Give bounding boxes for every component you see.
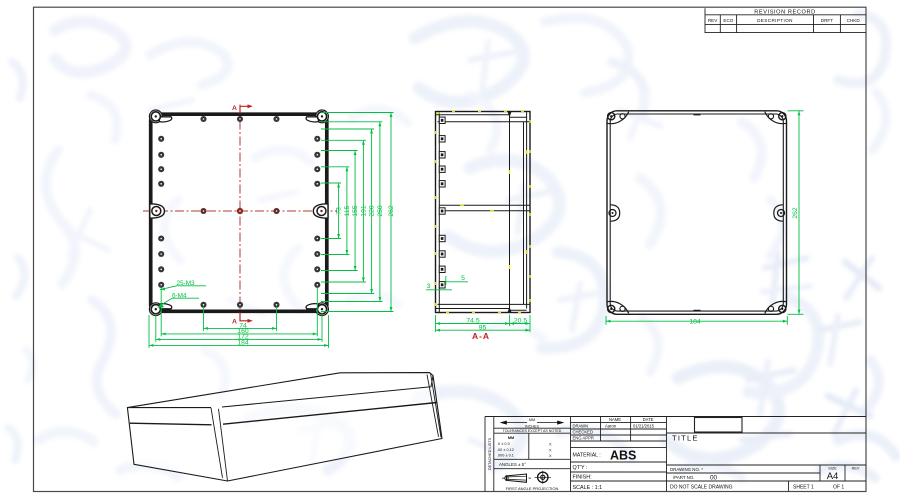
svg-text:.000 ± 0.1: .000 ± 0.1 [497, 454, 514, 458]
svg-text:250: 250 [377, 205, 384, 217]
svg-text:191: 191 [360, 205, 367, 217]
svg-text:A: A [232, 319, 237, 326]
svg-text:SHEET 1: SHEET 1 [793, 484, 814, 490]
svg-text:REVISION RECORD: REVISION RECORD [754, 9, 816, 15]
svg-text:ABS: ABS [610, 449, 636, 463]
svg-text:X: X [549, 448, 552, 452]
svg-text:/PART NO.: /PART NO. [673, 475, 694, 480]
svg-text:A4: A4 [827, 471, 839, 482]
svg-text:A: A [232, 105, 237, 112]
svg-text:CHKD: CHKD [847, 18, 861, 23]
svg-text:115: 115 [344, 205, 351, 216]
svg-text:262: 262 [792, 207, 799, 219]
svg-text:X: X [549, 443, 552, 447]
svg-text:MATERIAL :: MATERIAL : [573, 453, 601, 459]
svg-text:DO NOT SCALE DRAWING: DO NOT SCALE DRAWING [670, 484, 733, 490]
svg-text:184: 184 [237, 340, 249, 347]
svg-text:FIRST ANGLE PROJECTION: FIRST ANGLE PROJECTION [506, 486, 559, 491]
svg-text:SIZE: SIZE [828, 467, 837, 471]
svg-text:INCHES: INCHES [525, 424, 539, 428]
svg-text:262: 262 [388, 205, 395, 217]
svg-text:ANGLES ± 5°: ANGLES ± 5° [499, 462, 526, 467]
svg-text:SCALE : 1:1: SCALE : 1:1 [573, 485, 603, 491]
svg-text:QT'Y :: QT'Y : [573, 465, 588, 471]
svg-text:DATE: DATE [643, 417, 654, 422]
svg-text:DESCRIPTION: DESCRIPTION [757, 18, 793, 23]
svg-text:MM: MM [508, 436, 514, 440]
svg-text:184: 184 [689, 318, 701, 325]
svg-text:TOLERANCES EXCEPT AS NOTED: TOLERANCES EXCEPT AS NOTED [503, 429, 562, 433]
svg-text:MM: MM [529, 418, 535, 422]
svg-text:CHECKED: CHECKED [573, 429, 593, 434]
svg-text:DRAWING NO. *: DRAWING NO. * [670, 467, 703, 472]
svg-text:REV: REV [852, 467, 860, 471]
svg-text:TITLE: TITLE [672, 434, 699, 443]
svg-text:OF 1: OF 1 [833, 484, 844, 490]
svg-text:REV: REV [708, 18, 718, 23]
svg-text:20.5: 20.5 [514, 318, 527, 325]
svg-text:.00 ± 0.12: .00 ± 0.12 [497, 448, 514, 452]
svg-text:3: 3 [427, 283, 431, 290]
svg-text:ENG APPR: ENG APPR [573, 435, 594, 440]
svg-text:Aaron: Aaron [605, 423, 617, 428]
svg-text:.0 ± 0.3: .0 ± 0.3 [497, 442, 510, 446]
svg-text:DETACHED LISTS: DETACHED LISTS [488, 437, 492, 470]
svg-text:155: 155 [352, 205, 359, 217]
svg-text:DRAWN: DRAWN [573, 423, 589, 428]
svg-text:ECO: ECO [723, 18, 733, 23]
svg-text:NAME: NAME [609, 417, 621, 422]
svg-text:A-A: A-A [472, 331, 490, 341]
svg-text:FINISH:: FINISH: [573, 475, 592, 481]
svg-text:X: X [549, 454, 552, 458]
svg-text:5: 5 [461, 275, 465, 282]
svg-text:73: 73 [336, 207, 343, 215]
svg-text:220: 220 [369, 205, 376, 217]
svg-text:00: 00 [710, 475, 718, 482]
svg-text:01/21/2015: 01/21/2015 [633, 423, 655, 428]
svg-text:DRFT: DRFT [821, 18, 833, 23]
